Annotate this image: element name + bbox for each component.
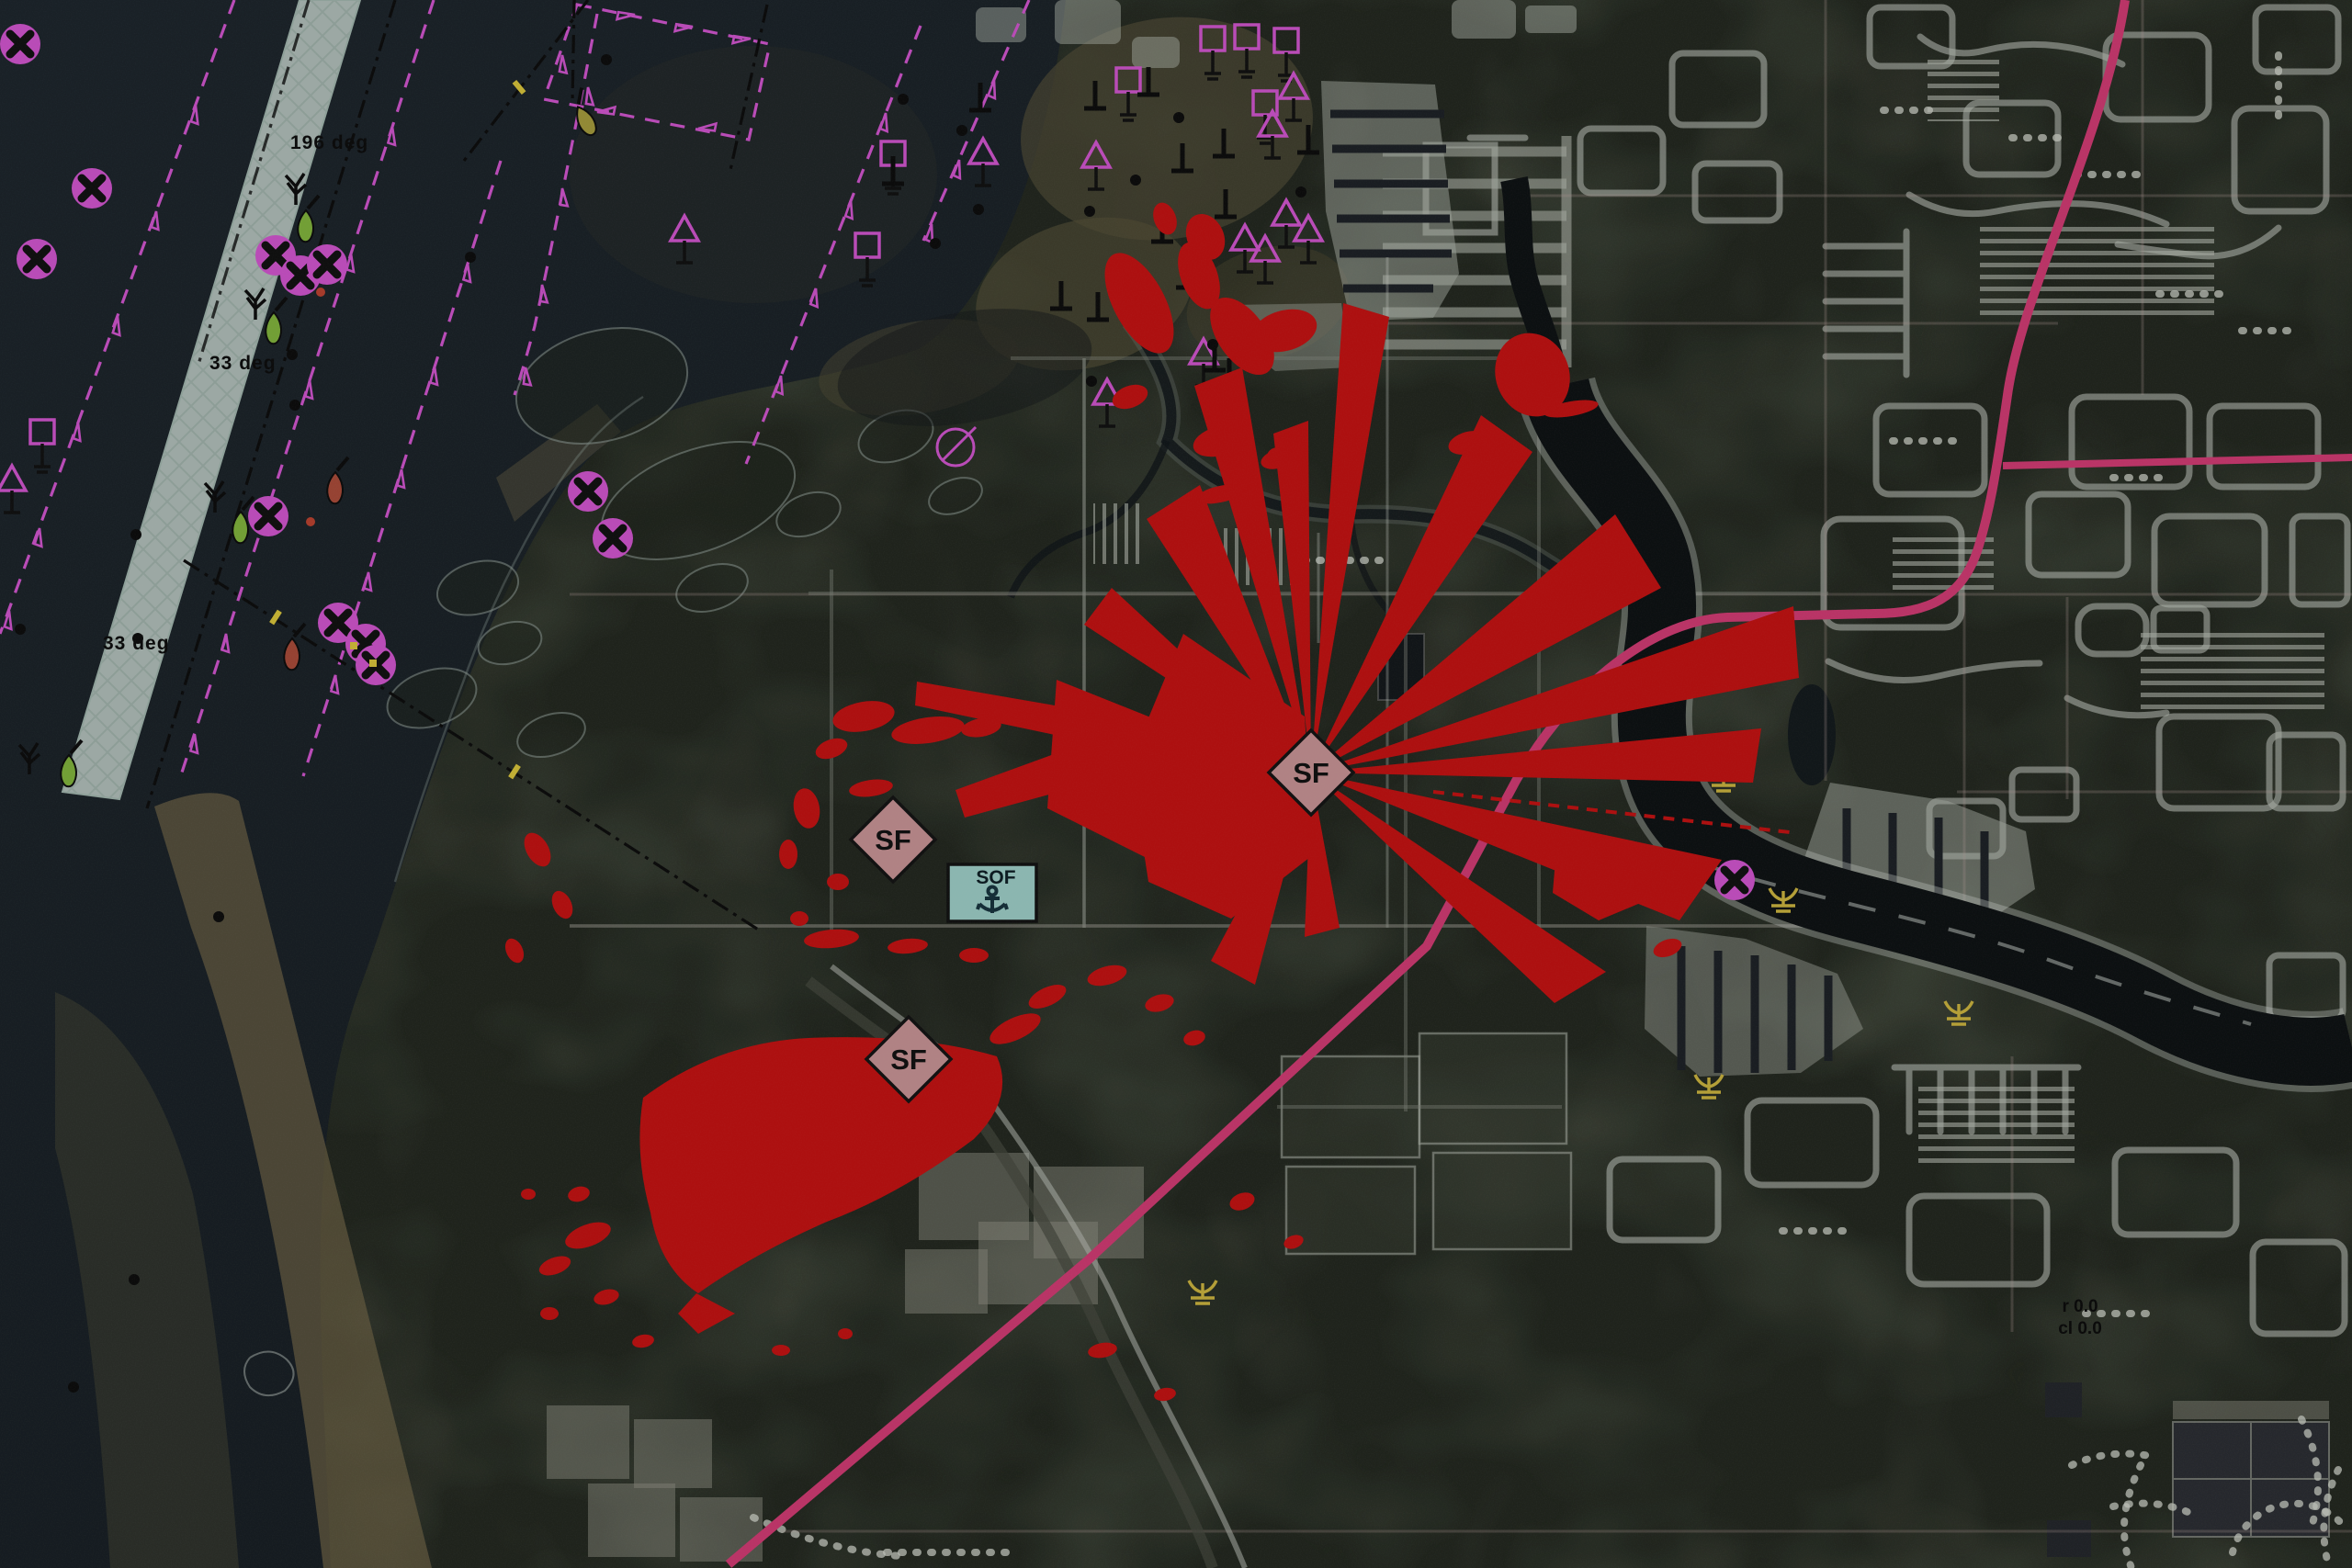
map-canvas[interactable]: 196 deg 33 deg 33 deg xyxy=(0,0,2352,1568)
map-svg: 196 deg 33 deg 33 deg xyxy=(0,0,2352,1568)
imagery-grain xyxy=(0,0,2352,1568)
